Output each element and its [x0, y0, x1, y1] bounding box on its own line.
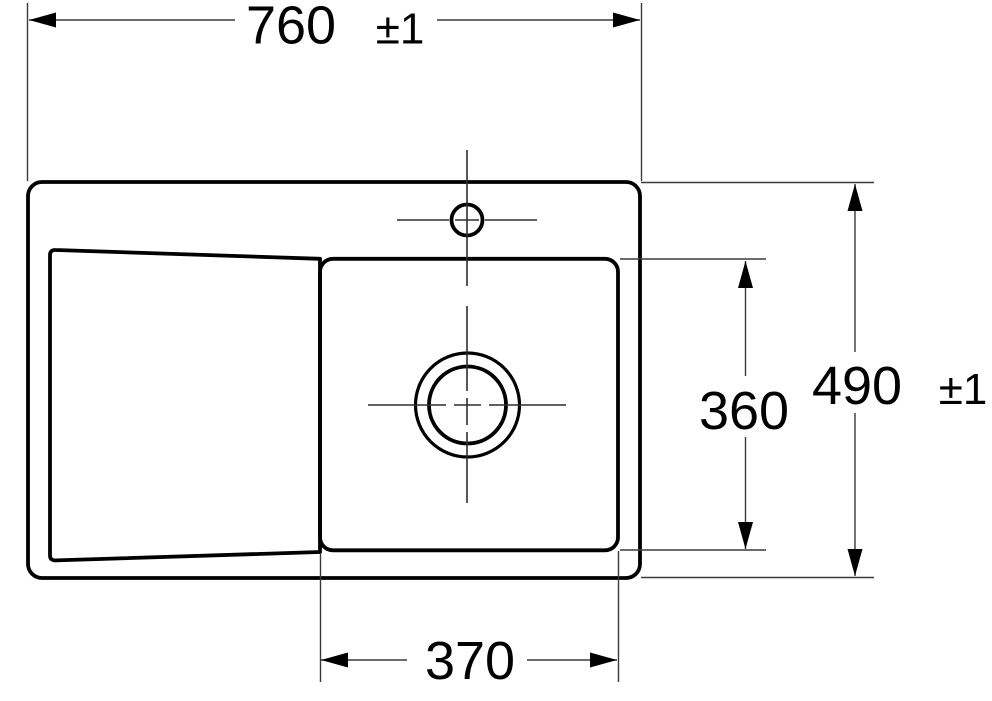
arrowhead-left-icon	[321, 653, 348, 668]
arrowhead-up-icon	[848, 184, 863, 211]
sink-outer-outline	[28, 182, 640, 578]
dim-overall-width-tolerance: ±1	[376, 5, 425, 54]
arrowhead-down-icon	[738, 522, 753, 549]
dim-overall-depth-value: 490	[812, 356, 902, 416]
sink-technical-drawing: 760 ±1 490 ±1 360 370	[0, 0, 992, 701]
arrowhead-right-icon	[613, 13, 640, 28]
arrowhead-right-icon	[590, 653, 617, 668]
arrowhead-up-icon	[738, 261, 753, 288]
sink-diagram-canvas: 760 ±1 490 ±1 360 370	[0, 0, 992, 701]
arrowhead-left-icon	[29, 13, 56, 28]
dimension-overall-depth: 490 ±1	[812, 184, 987, 576]
dimension-bowl-width: 370	[321, 631, 617, 691]
dim-overall-depth-tolerance: ±1	[939, 365, 988, 414]
dim-bowl-depth-value: 360	[699, 381, 789, 441]
arrowhead-down-icon	[848, 549, 863, 576]
drainboard-outline	[50, 250, 320, 560]
dim-overall-width-value: 760	[246, 0, 336, 56]
dim-bowl-width-value: 370	[425, 631, 515, 691]
dimension-overall-width: 760 ±1	[29, 0, 640, 56]
dimension-bowl-depth: 360	[699, 261, 789, 549]
